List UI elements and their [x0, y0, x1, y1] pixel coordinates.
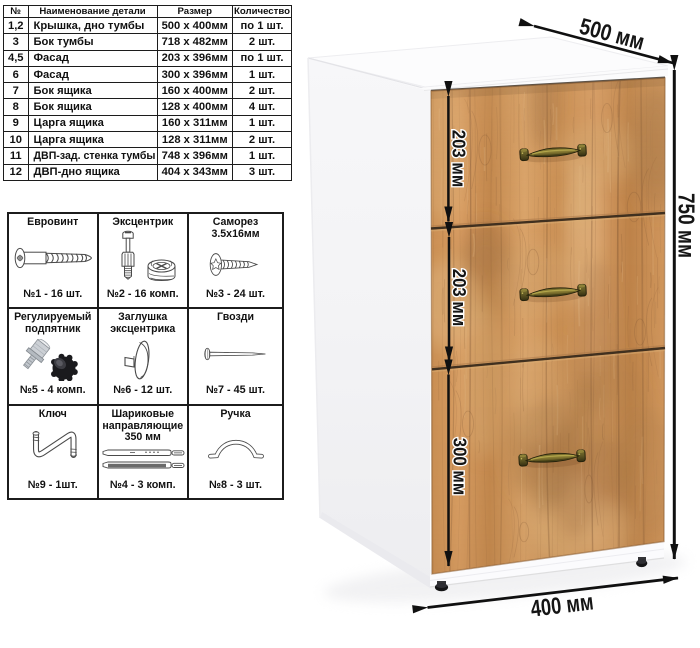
svg-text:750 мм: 750 мм: [674, 193, 700, 258]
svg-text:203 мм: 203 мм: [448, 130, 469, 188]
svg-text:300 мм: 300 мм: [450, 438, 471, 496]
svg-text:203 мм: 203 мм: [449, 269, 470, 327]
